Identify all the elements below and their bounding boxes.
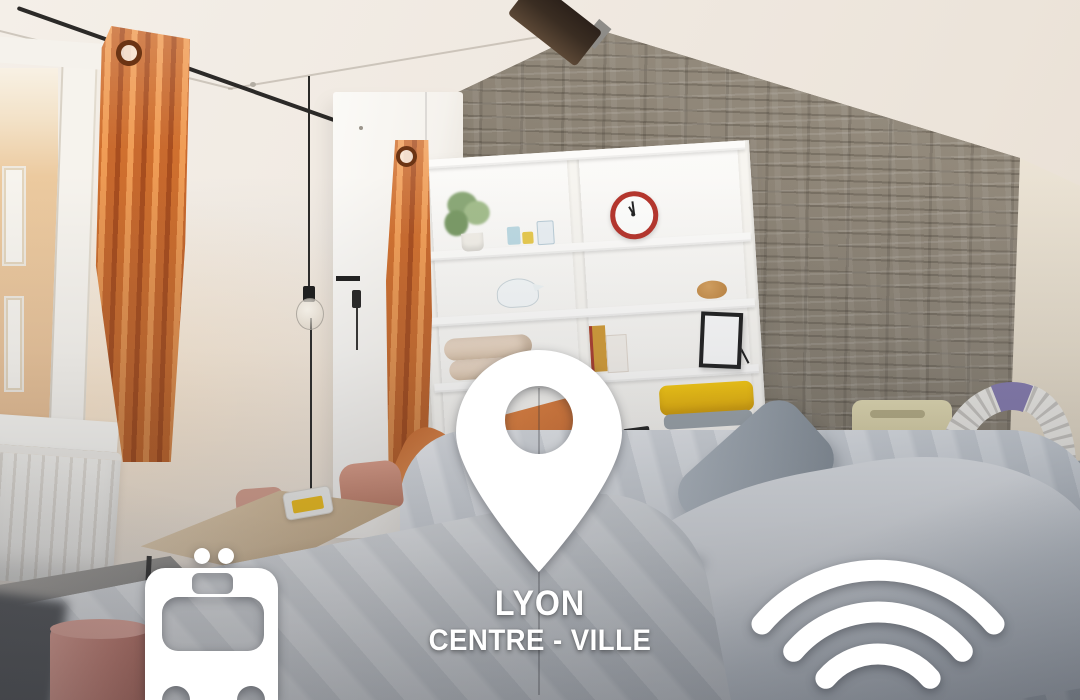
plug-cable [356, 308, 358, 350]
caption-line1: LYON [347, 584, 733, 624]
neighbor-window [4, 296, 24, 392]
mug-rim [50, 619, 150, 639]
wall-hook [336, 276, 360, 281]
radiator [0, 444, 122, 589]
wall-clock [609, 190, 660, 241]
photo-frame [699, 311, 743, 369]
cup [522, 231, 534, 244]
location-caption: LYON CENTRE - VILLE [347, 584, 733, 658]
wifi-icon [735, 548, 1035, 700]
wall-plug [352, 290, 361, 308]
ac-vent [870, 410, 925, 418]
neighbor-window [2, 166, 26, 266]
lamp-cord [308, 76, 310, 290]
cup [536, 220, 554, 245]
cup [507, 226, 521, 245]
train-icon [138, 540, 288, 700]
croissant-ornament [696, 280, 727, 300]
ceiling-hook [250, 82, 256, 87]
pink-mug [50, 626, 150, 700]
light-bulb [296, 298, 324, 330]
butter [291, 495, 324, 513]
caption-line2: CENTRE - VILLE [347, 624, 733, 658]
clock-center [631, 212, 635, 216]
plant-pot [461, 233, 484, 252]
listing-cover-photo: LYON CENTRE - VILLE [0, 0, 1080, 700]
window-glass [0, 68, 58, 430]
teapot [496, 277, 540, 309]
location-pin-icon [456, 350, 622, 574]
curtain-grommet [396, 146, 417, 167]
wardrobe-keyhole [359, 126, 363, 130]
